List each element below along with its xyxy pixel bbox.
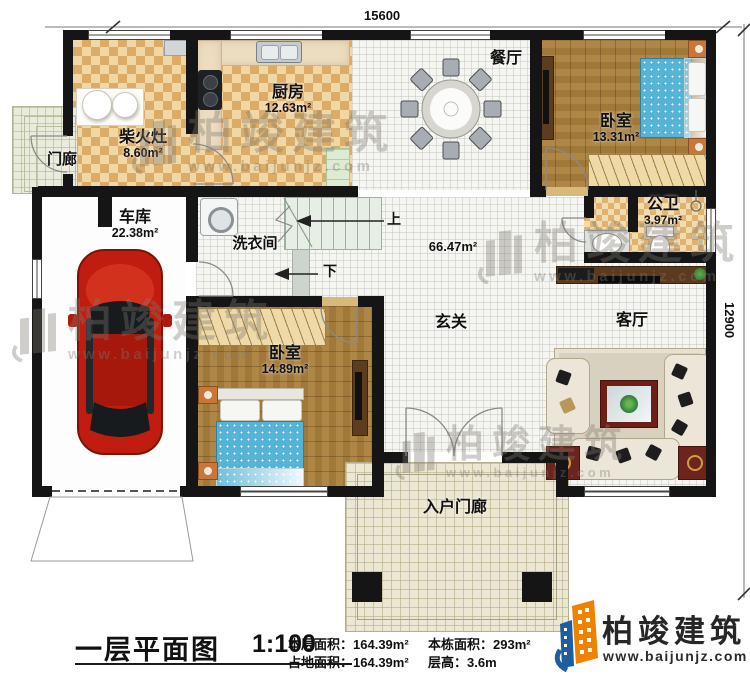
door-arc-entrance-right — [454, 408, 502, 456]
brand-name: 柏竣建筑 — [602, 606, 746, 651]
stat-site-area: 占地面积：164.39m² — [288, 652, 409, 671]
room-label-hall: 玄关 — [435, 314, 467, 332]
stat-floor-area: 本层面积：164.39m² — [288, 634, 409, 653]
room-label-bedroom2: 卧室14.89m² — [262, 345, 309, 376]
door-arc-bathroom — [562, 218, 586, 242]
stat-building-area: 本栋面积：293m² — [428, 634, 531, 653]
showerhead — [691, 201, 701, 211]
room-label-living: 客厅 — [616, 312, 648, 330]
room-label-porch: 门廊 — [47, 152, 77, 169]
car — [68, 250, 172, 454]
dimension-right: 12900 — [722, 302, 737, 338]
stairs-up-label: 上 — [387, 212, 401, 227]
floor-plan: 门廊 柴火灶8.60m² 厨房12.63m² 餐厅 卧室13.31m² 公卫3.… — [0, 0, 750, 680]
stair-break — [276, 206, 292, 242]
room-label-kitchen: 厨房12.63m² — [265, 84, 312, 115]
stairs-down-label: 下 — [323, 264, 337, 279]
room-label-laundry: 洗衣间 — [232, 236, 277, 253]
brand-logo-icon — [548, 596, 602, 676]
driveway — [31, 497, 193, 561]
room-label-bedroom1: 卧室13.31m² — [593, 113, 640, 144]
brand-url: www.baijunjz.com — [603, 648, 748, 664]
door-arc-entrance-left — [406, 408, 454, 456]
door-arc-bedroom1 — [546, 148, 588, 190]
hall-area-label: 66.47m² — [429, 240, 477, 254]
plan-title: 一层平面图 — [75, 628, 220, 667]
room-label-chaihuozao: 柴火灶8.60m² — [119, 129, 167, 160]
room-label-entry-porch: 入户门廊 — [423, 499, 487, 517]
door-arc-bedroom2 — [321, 307, 357, 343]
up-arrow-head — [296, 215, 311, 227]
door-arc-kitchen — [193, 144, 233, 184]
overlay — [0, 0, 750, 680]
dining-set — [401, 59, 501, 159]
down-arrow-head — [274, 268, 289, 280]
door-arc-garage-laundry — [199, 262, 233, 296]
room-label-bathroom: 公卫3.97m² — [644, 196, 682, 227]
stat-floor-height: 层高：3.6m — [428, 652, 497, 671]
room-label-dining: 餐厅 — [490, 50, 522, 68]
room-label-garage: 车库22.38m² — [112, 209, 159, 240]
dimension-top: 15600 — [364, 8, 400, 23]
